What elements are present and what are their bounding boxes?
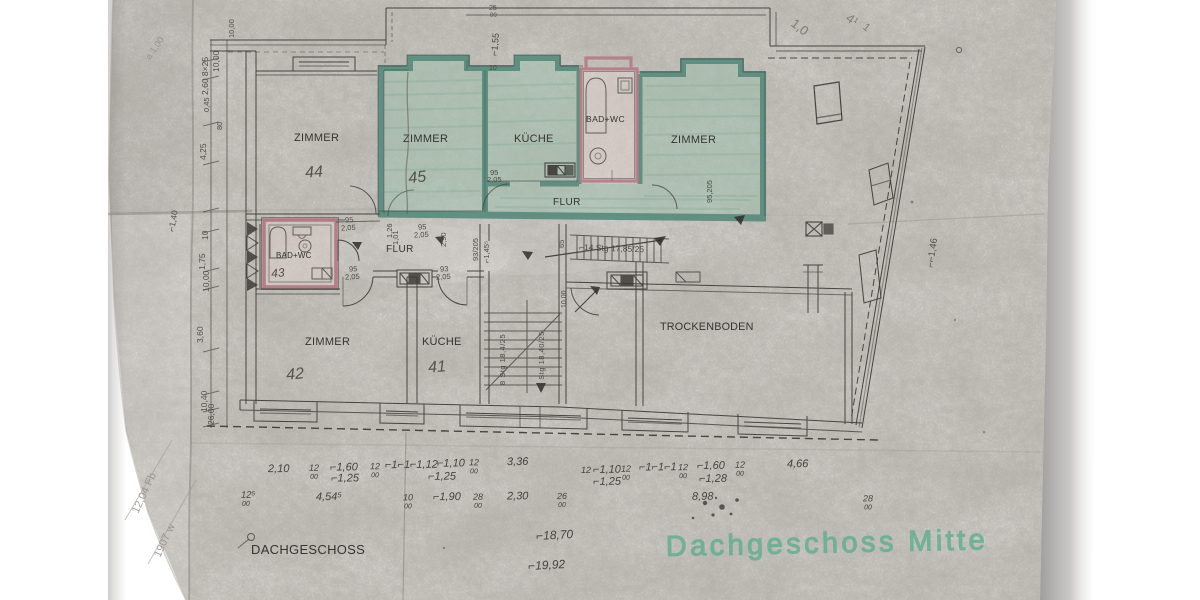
svg-text:00: 00 (242, 501, 250, 508)
svg-text:2,90: 2,90 (439, 232, 448, 247)
svg-text:ZIMMER: ZIMMER (305, 336, 350, 348)
svg-text:⌐1,28: ⌐1,28 (699, 473, 728, 485)
svg-text:Dachgeschoss Mitte: Dachgeschoss Mitte (665, 524, 988, 563)
svg-text:12: 12 (581, 465, 591, 475)
svg-text:ZIMMER: ZIMMER (403, 133, 448, 145)
svg-text:10,00: 10,00 (211, 50, 221, 72)
svg-text:00: 00 (490, 13, 497, 19)
svg-text:2,30: 2,30 (506, 490, 529, 502)
svg-text:95,205: 95,205 (705, 180, 714, 203)
svg-text:⌐1⌐1: ⌐1⌐1 (385, 459, 410, 471)
svg-text:⌐19,92: ⌐19,92 (528, 557, 566, 573)
svg-text:93/205: 93/205 (471, 238, 480, 261)
svg-text:⌐1,25: ⌐1,25 (428, 471, 457, 483)
svg-text:8 Stg 18,40/25: 8 Stg 18,40/25 (537, 331, 546, 387)
svg-text:10: 10 (489, 65, 497, 72)
svg-text:ZIMMER: ZIMMER (294, 132, 339, 144)
svg-text:⌐1,60: ⌐1,60 (697, 460, 726, 472)
svg-text:12: 12 (370, 461, 380, 471)
svg-text:28: 28 (862, 493, 873, 503)
svg-text:00: 00 (470, 468, 478, 475)
svg-text:12: 12 (469, 457, 479, 467)
svg-text:4,54⁵: 4,54⁵ (316, 491, 343, 503)
svg-text:2,05: 2,05 (414, 230, 429, 240)
svg-text:3,60: 3,60 (195, 326, 205, 343)
svg-text:2,10: 2,10 (267, 463, 290, 475)
svg-text:⌐18,70: ⌐18,70 (536, 527, 574, 543)
svg-text:ZIMMER: ZIMMER (671, 134, 716, 146)
svg-text:⌐1,10: ⌐1,10 (437, 457, 466, 469)
svg-text:65: 65 (557, 240, 566, 248)
svg-text:10: 10 (403, 492, 413, 502)
svg-text:00: 00 (622, 475, 630, 482)
svg-text:42: 42 (286, 365, 305, 383)
svg-text:2,05: 2,05 (345, 272, 360, 282)
svg-text:BAD+WC: BAD+WC (276, 251, 312, 260)
svg-text:1,01: 1,01 (391, 230, 400, 245)
svg-text:10,00: 10,00 (561, 290, 568, 308)
svg-text:10,00: 10,00 (201, 270, 211, 292)
svg-text:00: 00 (736, 471, 744, 478)
svg-text:4,66: 4,66 (787, 458, 809, 470)
svg-text:2,05: 2,05 (436, 272, 451, 282)
svg-text:26,00: 26,00 (206, 403, 216, 425)
svg-text:12⁵: 12⁵ (241, 490, 256, 501)
svg-text:TROCKENBODEN: TROCKENBODEN (660, 321, 754, 333)
svg-text:12: 12 (309, 463, 319, 473)
svg-text:44: 44 (305, 163, 324, 181)
svg-text:00: 00 (371, 472, 379, 479)
svg-text:00: 00 (404, 503, 412, 510)
svg-text:⌐1,90: ⌐1,90 (433, 491, 462, 503)
svg-text:10,00: 10,00 (227, 19, 236, 38)
svg-text:0,45: 0,45 (202, 97, 211, 112)
svg-text:12: 12 (735, 460, 745, 470)
svg-text:2,60 8×25: 2,60 8×25 (200, 57, 210, 95)
svg-text:80: 80 (215, 122, 224, 130)
svg-text:⌐1,45⁵: ⌐1,45⁵ (482, 241, 491, 263)
svg-text:2,05: 2,05 (341, 223, 356, 233)
svg-text:00: 00 (679, 473, 687, 480)
svg-text:DACHGESCHOSS: DACHGESCHOSS (251, 542, 365, 557)
svg-text:26: 26 (556, 491, 567, 501)
svg-text:45: 45 (408, 168, 428, 187)
svg-text:28: 28 (472, 492, 483, 502)
svg-text:00: 00 (558, 502, 566, 509)
svg-text:8,98: 8,98 (692, 491, 714, 503)
svg-text:KÜCHE: KÜCHE (514, 133, 554, 145)
svg-text:⌐1,55: ⌐1,55 (489, 33, 501, 57)
svg-text:FLUR: FLUR (553, 197, 581, 208)
svg-text:⌐1,12: ⌐1,12 (410, 459, 438, 471)
svg-text:25: 25 (489, 5, 497, 12)
svg-text:⌐1⌐1⌐1: ⌐1⌐1⌐1 (639, 461, 677, 473)
svg-text:12: 12 (621, 464, 631, 474)
svg-text:00: 00 (310, 474, 318, 481)
svg-text:3,36: 3,36 (507, 456, 529, 468)
svg-text:43: 43 (271, 265, 286, 280)
svg-text:KÜCHE: KÜCHE (422, 336, 462, 348)
svg-text:⌐1,25: ⌐1,25 (593, 476, 622, 488)
svg-text:00: 00 (474, 503, 482, 510)
svg-text:10: 10 (200, 230, 210, 240)
svg-text:12: 12 (678, 462, 688, 472)
svg-text:1,75: 1,75 (197, 253, 207, 270)
svg-text:BAD+WC: BAD+WC (586, 114, 625, 124)
svg-text:4,25: 4,25 (198, 143, 208, 160)
svg-text:⌐1,25: ⌐1,25 (331, 472, 360, 484)
svg-text:8 Stg 18,4/25: 8 Stg 18,4/25 (498, 334, 507, 385)
svg-text:41: 41 (428, 358, 447, 376)
svg-text:⌐1,10: ⌐1,10 (593, 464, 622, 476)
svg-text:00: 00 (864, 504, 872, 511)
svg-text:2,05: 2,05 (487, 175, 502, 184)
